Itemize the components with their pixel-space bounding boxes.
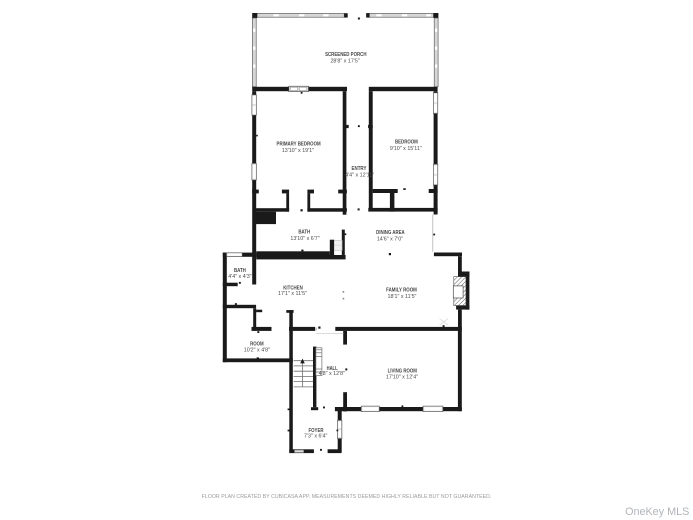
svg-text:ENTRY: ENTRY (352, 166, 367, 172)
svg-text:13'10" x 19'1": 13'10" x 19'1" (282, 148, 314, 154)
svg-text:BATH: BATH (298, 229, 310, 235)
svg-text:ROOM: ROOM (250, 341, 264, 347)
svg-text:18'1" x 11'5": 18'1" x 11'5" (388, 294, 417, 300)
svg-text:4'4" x 12'11": 4'4" x 12'11" (345, 172, 374, 178)
svg-text:17'1" x 11'5": 17'1" x 11'5" (278, 291, 307, 297)
svg-text:4'4" x 4'3": 4'4" x 4'3" (228, 274, 251, 280)
svg-text:FLOOR PLAN CREATED BY CUBICASA: FLOOR PLAN CREATED BY CUBICASA APP. MEAS… (202, 494, 492, 500)
svg-text:10'2" x 4'8": 10'2" x 4'8" (244, 347, 270, 353)
svg-text:SCREENED PORCH: SCREENED PORCH (325, 52, 367, 58)
svg-text:13'10" x 6'7": 13'10" x 6'7" (290, 236, 319, 242)
svg-text:14'6" x 7'0": 14'6" x 7'0" (377, 236, 403, 242)
svg-text:LIVING ROOM: LIVING ROOM (388, 369, 418, 375)
svg-text:FAMILY ROOM: FAMILY ROOM (386, 287, 417, 293)
svg-text:28'8" x 17'5": 28'8" x 17'5" (330, 59, 359, 65)
svg-text:BEDROOM: BEDROOM (395, 139, 418, 145)
svg-text:7'3" x 6'4": 7'3" x 6'4" (304, 434, 327, 440)
svg-text:PRIMARY BEDROOM: PRIMARY BEDROOM (277, 141, 322, 147)
svg-text:9'10" x 15'11": 9'10" x 15'11" (390, 146, 422, 152)
svg-text:17'10" x 12'4": 17'10" x 12'4" (386, 375, 418, 381)
svg-text:DINING AREA: DINING AREA (376, 230, 405, 236)
svg-text:4'8" x 12'8": 4'8" x 12'8" (319, 371, 345, 377)
svg-text:OneKey MLS: OneKey MLS (625, 506, 689, 518)
